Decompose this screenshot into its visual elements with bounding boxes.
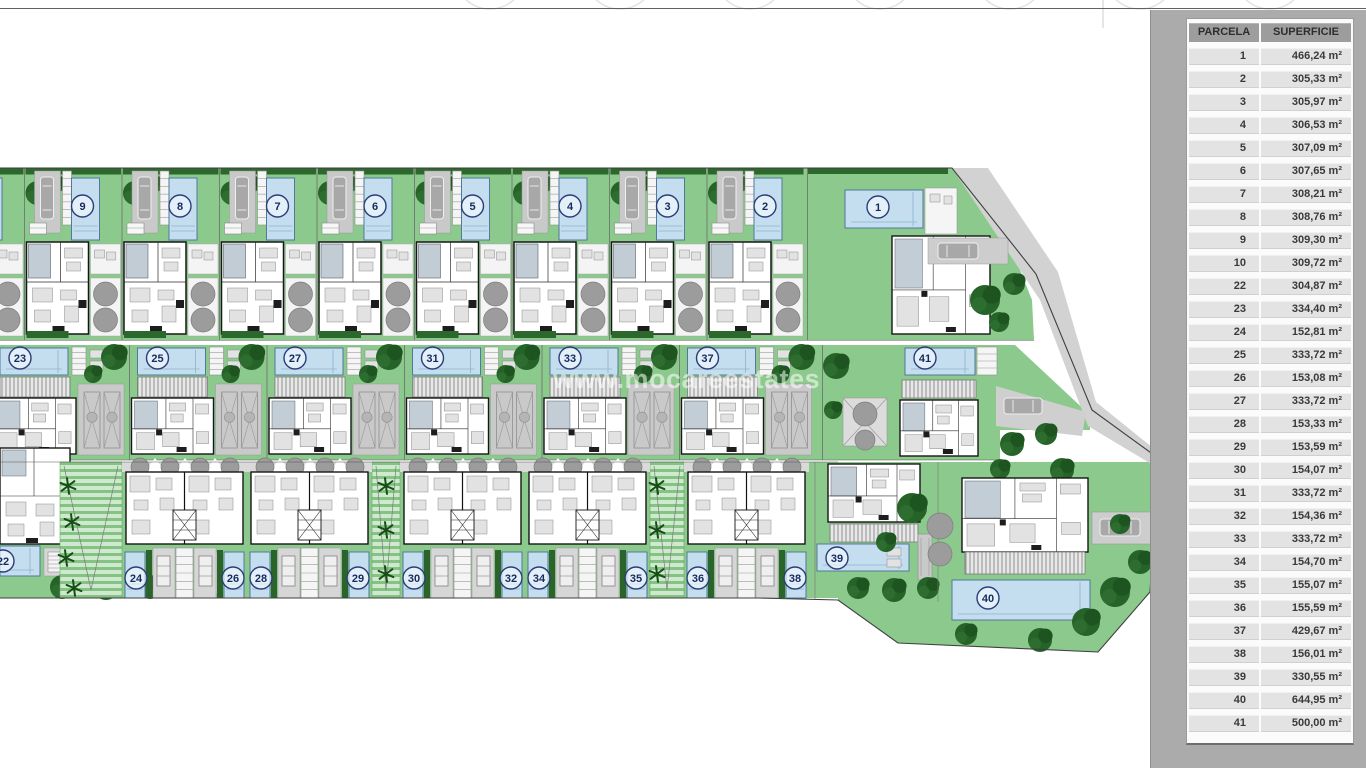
svg-text:9: 9	[79, 201, 85, 213]
parcel-31: 31	[405, 344, 541, 460]
parcel-2-marker: 2	[754, 195, 776, 217]
parcel-33-marker: 33	[559, 347, 581, 369]
parcel-37: 37	[680, 344, 816, 460]
svg-text:7: 7	[274, 201, 280, 213]
table-row: 32154,36 m²	[1189, 508, 1351, 525]
parcel-24-marker: 24	[125, 567, 147, 589]
parcel-27: 27	[267, 344, 403, 460]
table-row: 10309,72 m²	[1189, 255, 1351, 272]
superficie-cell: 333,72 m²	[1261, 393, 1351, 410]
parcel-27-marker: 27	[284, 347, 306, 369]
superficie-cell: 305,97 m²	[1261, 94, 1351, 111]
parcel-5-marker: 5	[462, 195, 484, 217]
parcela-cell: 37	[1189, 623, 1259, 640]
superficie-cell: 304,87 m²	[1261, 278, 1351, 295]
parcela-cell: 32	[1189, 508, 1259, 525]
table-row: 35155,07 m²	[1189, 577, 1351, 594]
parcela-cell: 2	[1189, 71, 1259, 88]
svg-text:32: 32	[505, 573, 517, 585]
svg-text:41: 41	[919, 353, 931, 365]
svg-text:22: 22	[0, 556, 9, 568]
parcel-39-marker: 39	[826, 547, 848, 569]
superficie-cell: 500,00 m²	[1261, 715, 1351, 732]
svg-text:40: 40	[982, 593, 994, 605]
table-row: 8308,76 m²	[1189, 209, 1351, 226]
table-row: 30154,07 m²	[1189, 462, 1351, 479]
parcel-40-marker: 40	[977, 587, 999, 609]
table-row: 9309,30 m²	[1189, 232, 1351, 249]
superficie-cell: 155,07 m²	[1261, 577, 1351, 594]
parcel-32-marker: 32	[500, 567, 522, 589]
parcela-cell: 41	[1189, 715, 1259, 732]
svg-text:8: 8	[177, 201, 183, 213]
svg-text:2: 2	[762, 201, 768, 213]
parcel-23-marker: 23	[9, 347, 31, 369]
superficie-cell: 334,40 m²	[1261, 301, 1351, 318]
table-rows: 1466,24 m²2305,33 m²3305,97 m²4306,53 m²…	[1189, 48, 1351, 732]
parcel-7-marker: 7	[267, 195, 289, 217]
parcela-cell: 23	[1189, 301, 1259, 318]
parcel-26-marker: 26	[222, 567, 244, 589]
table-row: 24152,81 m²	[1189, 324, 1351, 341]
parcel-30-marker: 30	[403, 567, 425, 589]
svg-text:25: 25	[151, 353, 163, 365]
svg-text:37: 37	[701, 353, 713, 365]
svg-text:38: 38	[789, 573, 801, 585]
parcela-cell: 24	[1189, 324, 1259, 341]
parcel-9-marker: 9	[72, 195, 94, 217]
parcel-33: 33	[542, 344, 678, 460]
table-row: 1466,24 m²	[1189, 48, 1351, 65]
superficie-cell: 309,30 m²	[1261, 232, 1351, 249]
superficie-cell: 333,72 m²	[1261, 531, 1351, 548]
superficie-cell: 152,81 m²	[1261, 324, 1351, 341]
superficie-cell: 307,65 m²	[1261, 163, 1351, 180]
svg-text:34: 34	[533, 573, 546, 585]
parcela-cell: 29	[1189, 439, 1259, 456]
table-row: 38156,01 m²	[1189, 646, 1351, 663]
table-row: 36155,59 m²	[1189, 600, 1351, 617]
parcela-cell: 36	[1189, 600, 1259, 617]
superficie-cell: 308,76 m²	[1261, 209, 1351, 226]
parcela-cell: 33	[1189, 531, 1259, 548]
superficie-cell: 153,08 m²	[1261, 370, 1351, 387]
svg-text:39: 39	[831, 553, 843, 565]
parcel-29-marker: 29	[347, 567, 369, 589]
parcel-block-36-38: 3638	[684, 458, 809, 598]
table-row: 22304,87 m²	[1189, 278, 1351, 295]
parcel-block-34-35: 3435	[525, 458, 650, 598]
table-row: 29153,59 m²	[1189, 439, 1351, 456]
parcel-6-marker: 6	[364, 195, 386, 217]
superficie-cell: 333,72 m²	[1261, 485, 1351, 502]
svg-text:35: 35	[630, 573, 642, 585]
superficie-cell: 644,95 m²	[1261, 692, 1351, 709]
parcel-37-marker: 37	[697, 347, 719, 369]
table-row: 34154,70 m²	[1189, 554, 1351, 571]
parcel-23: 23	[0, 344, 128, 460]
table-row: 31333,72 m²	[1189, 485, 1351, 502]
superficie-cell: 154,36 m²	[1261, 508, 1351, 525]
parcel-block-30-32: 3032	[400, 458, 525, 598]
top-border-line	[0, 8, 1366, 9]
superficie-cell: 308,21 m²	[1261, 186, 1351, 203]
parcela-cell: 8	[1189, 209, 1259, 226]
parcela-cell: 6	[1189, 163, 1259, 180]
table-row: 37429,67 m²	[1189, 623, 1351, 640]
superficie-cell: 154,07 m²	[1261, 462, 1351, 479]
parcel-41-marker: 41	[914, 347, 936, 369]
parcela-cell: 28	[1189, 416, 1259, 433]
parcela-cell: 4	[1189, 117, 1259, 134]
col-header-parcela: PARCELA	[1189, 23, 1259, 42]
parcela-cell: 31	[1189, 485, 1259, 502]
svg-text:28: 28	[255, 573, 267, 585]
superficie-cell: 330,55 m²	[1261, 669, 1351, 686]
superficie-cell: 305,33 m²	[1261, 71, 1351, 88]
right-panel: PARCELA SUPERFICIE 1466,24 m²2305,33 m²3…	[1150, 10, 1366, 768]
parcel-25: 25	[130, 344, 266, 460]
parcela-cell: 7	[1189, 186, 1259, 203]
superficie-cell: 154,70 m²	[1261, 554, 1351, 571]
parcela-cell: 27	[1189, 393, 1259, 410]
parcela-cell: 10	[1189, 255, 1259, 272]
table-row: 3305,97 m²	[1189, 94, 1351, 111]
svg-text:29: 29	[352, 573, 364, 585]
superficie-cell: 306,53 m²	[1261, 117, 1351, 134]
parcel-28-marker: 28	[250, 567, 272, 589]
table-row: 33333,72 m²	[1189, 531, 1351, 548]
parcela-cell: 38	[1189, 646, 1259, 663]
parcel-table: PARCELA SUPERFICIE 1466,24 m²2305,33 m²3…	[1186, 18, 1354, 745]
table-row: 41500,00 m²	[1189, 715, 1351, 732]
svg-text:31: 31	[426, 353, 438, 365]
svg-text:30: 30	[408, 573, 420, 585]
svg-text:5: 5	[469, 201, 475, 213]
parcel-1-marker: 1	[867, 196, 889, 218]
svg-text:4: 4	[567, 201, 574, 213]
parcela-cell: 22	[1189, 278, 1259, 295]
table-row: 7308,21 m²	[1189, 186, 1351, 203]
parcel-3-marker: 3	[657, 195, 679, 217]
parcela-cell: 26	[1189, 370, 1259, 387]
parcel-block-28-29: 2829	[247, 458, 372, 598]
superficie-cell: 153,33 m²	[1261, 416, 1351, 433]
svg-text:36: 36	[692, 573, 704, 585]
svg-text:27: 27	[289, 353, 301, 365]
table-row: 39330,55 m²	[1189, 669, 1351, 686]
parcel-35-marker: 35	[625, 567, 647, 589]
parcela-cell: 34	[1189, 554, 1259, 571]
parcel-36-marker: 36	[687, 567, 709, 589]
superficie-cell: 429,67 m²	[1261, 623, 1351, 640]
parcel-4-marker: 4	[559, 195, 581, 217]
parcela-cell: 39	[1189, 669, 1259, 686]
plan-viewer: 9876543212325273133374122242628293032343…	[0, 0, 1366, 768]
superficie-cell: 309,72 m²	[1261, 255, 1351, 272]
superficie-cell: 156,01 m²	[1261, 646, 1351, 663]
superficie-cell: 333,72 m²	[1261, 347, 1351, 364]
parcela-cell: 35	[1189, 577, 1259, 594]
table-row: 40644,95 m²	[1189, 692, 1351, 709]
svg-text:24: 24	[130, 573, 143, 585]
svg-text:33: 33	[564, 353, 576, 365]
table-row: 25333,72 m²	[1189, 347, 1351, 364]
table-row: 6307,65 m²	[1189, 163, 1351, 180]
parcel-block-24-26: 2426	[122, 458, 247, 598]
parcel-34-marker: 34	[528, 567, 550, 589]
table-row: 26153,08 m²	[1189, 370, 1351, 387]
svg-text:1: 1	[875, 202, 881, 214]
parcela-cell: 40	[1189, 692, 1259, 709]
parcela-cell: 1	[1189, 48, 1259, 65]
parcela-cell: 25	[1189, 347, 1259, 364]
table-row: 2305,33 m²	[1189, 71, 1351, 88]
parcela-cell: 5	[1189, 140, 1259, 157]
table-header: PARCELA SUPERFICIE	[1189, 23, 1351, 42]
parcel-31-marker: 31	[422, 347, 444, 369]
superficie-cell: 466,24 m²	[1261, 48, 1351, 65]
superficie-cell: 153,59 m²	[1261, 439, 1351, 456]
table-row: 27333,72 m²	[1189, 393, 1351, 410]
parcela-cell: 9	[1189, 232, 1259, 249]
parcela-cell: 3	[1189, 94, 1259, 111]
table-row: 4306,53 m²	[1189, 117, 1351, 134]
parcel-8-marker: 8	[169, 195, 191, 217]
svg-text:23: 23	[14, 353, 26, 365]
parcel-25-marker: 25	[147, 347, 169, 369]
table-row: 28153,33 m²	[1189, 416, 1351, 433]
parcel-38-marker: 38	[784, 567, 806, 589]
col-header-superficie: SUPERFICIE	[1261, 23, 1351, 42]
svg-text:6: 6	[372, 201, 378, 213]
svg-text:26: 26	[227, 573, 239, 585]
superficie-cell: 307,09 m²	[1261, 140, 1351, 157]
superficie-cell: 155,59 m²	[1261, 600, 1351, 617]
table-row: 23334,40 m²	[1189, 301, 1351, 318]
svg-text:3: 3	[664, 201, 670, 213]
parcela-cell: 30	[1189, 462, 1259, 479]
table-row: 5307,09 m²	[1189, 140, 1351, 157]
